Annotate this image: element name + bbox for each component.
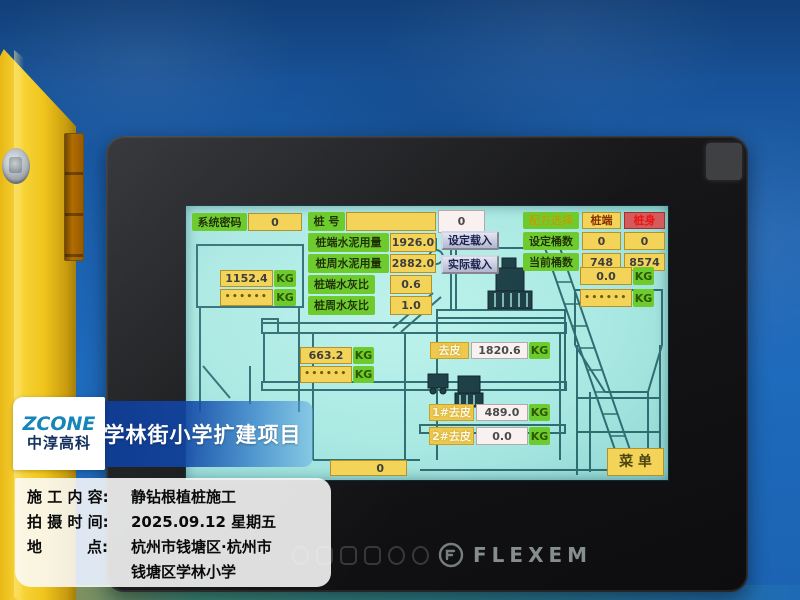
right-scale-unit: KG <box>633 267 654 285</box>
set-load-button[interactable]: 设定载入 <box>441 231 499 250</box>
right-scale-value: 0.0 <box>580 267 632 285</box>
ratio-side-label: 桩周水灰比 <box>308 296 375 315</box>
pile-number-label: 桩 号 <box>308 212 345 231</box>
cement-end-label: 桩端水泥用量 <box>308 233 389 252</box>
info-label: 拍 摄 时 间: <box>27 510 131 535</box>
mid-scale-masked-value: •••••• <box>300 366 352 383</box>
flexem-logo-icon <box>438 542 464 568</box>
info-label: 地 点: <box>27 535 131 560</box>
tare2-label: 2#去皮 <box>429 427 474 445</box>
cement-end-input[interactable]: 1926.0 <box>390 233 436 252</box>
flexem-brand-text: FLEXEM <box>473 543 592 567</box>
tare-label: 去皮 <box>430 342 469 359</box>
photo-of-hmi-panel: 系统密码 0 桩 号 0 配方选择 桩端 桩身 桩端水泥用量 1926.0 设定… <box>0 0 800 600</box>
info-value-line2: 钱塘区学林小学 <box>131 560 331 585</box>
system-password-label: 系统密码 <box>192 213 247 231</box>
watermark-project-title-bar: 学林街小学扩建项目 <box>92 401 313 467</box>
system-password-input[interactable]: 0 <box>248 213 302 231</box>
left-scale-unit: KG <box>274 270 296 287</box>
actual-load-button[interactable]: 实际载入 <box>441 255 499 274</box>
tare2-unit: KG <box>529 427 550 445</box>
tare1-label: 1#去皮 <box>429 404 474 421</box>
info-value: 静钻根植桩施工 <box>131 485 236 510</box>
protective-film-tab <box>706 143 742 180</box>
recipe-pile-body-button[interactable]: 桩身 <box>624 212 665 229</box>
pile-number-input[interactable] <box>346 212 436 231</box>
tare1-value: 489.0 <box>476 404 528 421</box>
tare-unit: KG <box>529 342 550 359</box>
watermark-logo-box: ZCONE 中淳高科 <box>13 397 105 470</box>
cabinet-bolt <box>2 148 30 184</box>
info-row-content: 施 工 内 容: 静钻根植桩施工 <box>27 485 331 510</box>
left-scale-value: 1152.4 <box>220 270 273 287</box>
info-value: 杭州市钱塘区·杭州市 <box>131 535 272 560</box>
ratio-side-input[interactable]: 1.0 <box>390 296 432 315</box>
zcone-logo: ZCONE <box>23 415 96 434</box>
bottom-weight-value: 0 <box>330 460 407 476</box>
menu-button[interactable]: 菜 单 <box>607 448 664 476</box>
bezel-branding: FLEXEM <box>292 538 612 572</box>
tare2-value: 0.0 <box>476 427 528 445</box>
ratio-end-input[interactable]: 0.6 <box>390 275 432 294</box>
left-scale-masked-value: •••••• <box>220 289 273 306</box>
right-scale-unit-2: KG <box>633 289 654 307</box>
zcone-company-name: 中淳高科 <box>27 434 91 453</box>
pile-number-display[interactable]: 0 <box>438 210 485 233</box>
cement-side-input[interactable]: 2882.0 <box>390 254 436 273</box>
mid-scale-unit: KG <box>353 347 374 364</box>
project-title: 学林街小学扩建项目 <box>104 419 302 449</box>
info-label: 施 工 内 容: <box>27 485 131 510</box>
mid-scale-value: 663.2 <box>300 347 352 364</box>
tare1-unit: KG <box>529 404 550 421</box>
recipe-pile-end-button[interactable]: 桩端 <box>582 212 621 229</box>
info-row-datetime: 拍 摄 时 间: 2025.09.12 星期五 <box>27 510 331 535</box>
current-buckets-label: 当前桶数 <box>523 253 579 271</box>
ratio-end-label: 桩端水灰比 <box>308 275 375 294</box>
info-value: 2025.09.12 星期五 <box>131 510 276 535</box>
left-scale-unit-2: KG <box>274 289 296 306</box>
info-row-location: 地 点: 杭州市钱塘区·杭州市 <box>27 535 331 560</box>
set-buckets-end-input[interactable]: 0 <box>582 232 621 250</box>
set-buckets-label: 设定桶数 <box>523 232 579 250</box>
right-scale-masked-value: •••••• <box>580 289 632 307</box>
mid-scale-unit-2: KG <box>353 366 374 383</box>
set-buckets-body-input[interactable]: 0 <box>624 232 665 250</box>
tare-value: 1820.6 <box>471 342 528 359</box>
recipe-select-label: 配方选择 <box>523 212 579 229</box>
cabinet-hinge <box>64 133 84 261</box>
cement-side-label: 桩周水泥用量 <box>308 254 389 273</box>
watermark-info-panel: 施 工 内 容: 静钻根植桩施工 拍 摄 时 间: 2025.09.12 星期五… <box>15 478 331 587</box>
